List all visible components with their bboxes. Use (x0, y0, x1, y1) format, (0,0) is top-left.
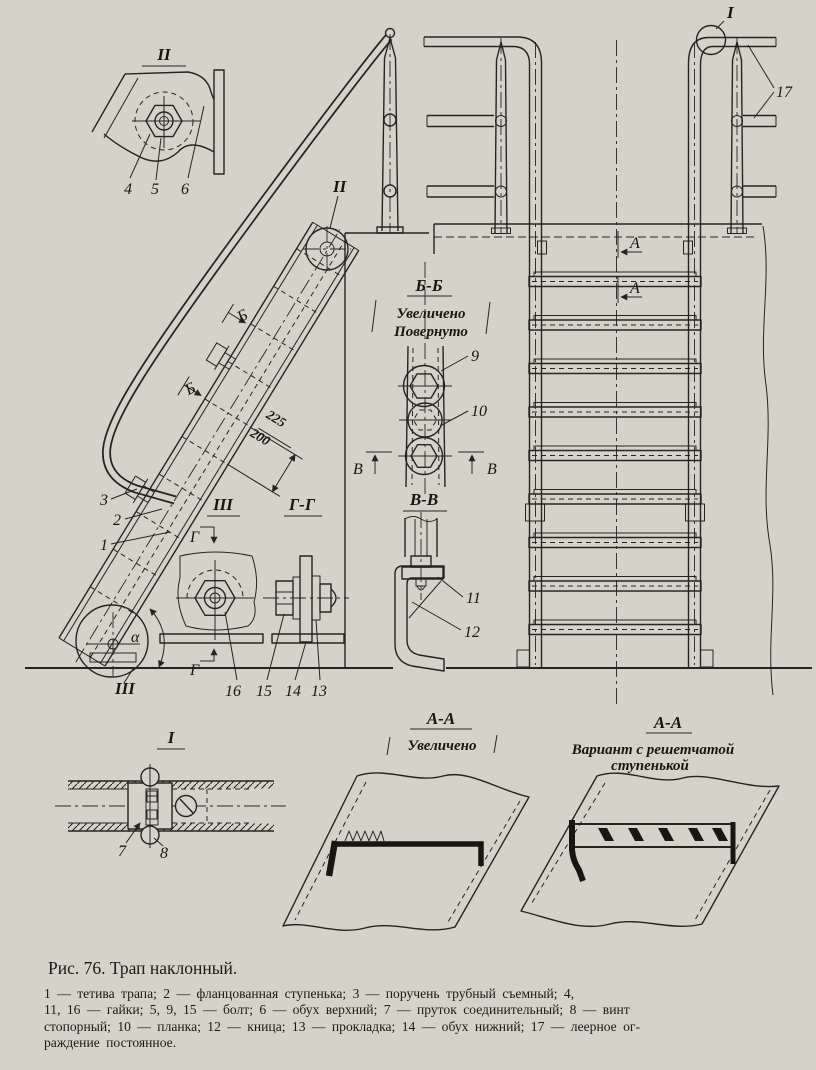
grating-bar (628, 828, 644, 841)
leader-13 (316, 620, 320, 680)
callout-III: III (76, 605, 148, 698)
step (529, 403, 701, 418)
section-bb-title: Б-Б (414, 276, 442, 295)
grated-step (570, 820, 734, 881)
hex-nut-lower (176, 560, 254, 640)
section-aa-variant-title: А-А (653, 713, 682, 732)
leader-5 (156, 138, 161, 180)
grating-bar (658, 828, 674, 841)
part-label-4: 4 (124, 181, 132, 198)
ladder-stringer-band: 200 225 (31, 202, 415, 708)
break-line (763, 226, 773, 695)
dim-225: 225 (263, 406, 289, 430)
plate-fragment (178, 552, 257, 630)
leader-14 (295, 642, 306, 680)
side-view: 200 225 Б Б II III 3 2 (25, 29, 429, 709)
leader-17b (754, 92, 774, 118)
part-label-3: 3 (99, 492, 108, 509)
step (529, 272, 701, 287)
planka-section (402, 567, 443, 579)
leader-4 (130, 134, 150, 178)
section-aa-view: А-А Увеличено (283, 709, 529, 930)
step (529, 620, 701, 635)
section-bb-note2: Повернуто (393, 324, 468, 340)
detail-I-view: I 7 (55, 728, 286, 862)
section-vv-view: В-В 11 12 (395, 490, 481, 671)
section-g-cut-marks: Г Г (189, 527, 214, 679)
stringer-left (517, 42, 547, 667)
step (529, 533, 701, 548)
base-plate-hatched (160, 634, 263, 643)
part-label-7: 7 (118, 843, 127, 860)
gg-bolt-assembly (263, 556, 349, 643)
slotted-screw (176, 796, 197, 817)
ladder-steps (529, 272, 701, 635)
step-angle-bar (332, 844, 481, 866)
part-label-10: 10 (471, 403, 487, 420)
knitsa-bracket (395, 566, 444, 671)
section-vv-title: В-В (409, 490, 438, 509)
grating-bar (598, 828, 614, 841)
mark-a-bottom: А (629, 280, 640, 297)
part-label-1: 1 (100, 537, 108, 554)
part-label-13: 13 (311, 683, 327, 700)
part-label-11: 11 (466, 590, 481, 607)
section-aa-note: Увеличено (408, 738, 477, 754)
mark-b-top: Б (234, 306, 252, 326)
mark-g-bottom: Г (189, 662, 200, 679)
detail-I-title: I (167, 728, 176, 747)
mark-g-top: Г (189, 529, 200, 546)
section-aa-title: А-А (426, 709, 455, 728)
front-view: А А I 17 (424, 3, 812, 704)
callout-II: II (303, 177, 351, 272)
section-bb-view: Б-Б Увеличено Повернуто 9 10 (353, 262, 497, 497)
callout-I-label: I (726, 3, 735, 22)
part-label-9: 9 (471, 348, 479, 365)
railing-stanchion-left (492, 38, 511, 234)
mark-v-right: В (487, 461, 497, 478)
caption-title: Рис. 76. Трап наклонный. (48, 958, 786, 979)
step (529, 446, 701, 461)
detail-III-title: III (212, 495, 234, 514)
step (529, 359, 701, 374)
part-label-17: 17 (776, 84, 793, 101)
callout-II-label: II (332, 177, 348, 196)
weld-serration (345, 831, 384, 841)
connector-coupling (128, 764, 172, 848)
part-label-12: 12 (464, 624, 480, 641)
part-label-8: 8 (160, 845, 168, 862)
section-bb-note1: Увеличено (397, 306, 466, 322)
callout-III-label: III (114, 679, 136, 698)
detail-III-gg-view: III Г-Г Г Г (160, 495, 349, 700)
figure-caption: Рис. 76. Трап наклонный. 1 — тетива трап… (44, 958, 786, 1052)
figure-sheet: II 4 5 6 (0, 0, 816, 1070)
hatched-wall (214, 70, 224, 174)
mark-b-bottom: Б (181, 379, 199, 399)
section-gg-title: Г-Г (288, 495, 316, 514)
handrail-outer (106, 37, 389, 500)
handrail-inner (106, 37, 389, 500)
legend-line: 1 — тетива трапа; 2 — фланцованная ступе… (44, 986, 786, 1002)
top-rail-left (424, 37, 542, 64)
part-label-2: 2 (113, 512, 121, 529)
railing-rails (427, 116, 776, 198)
legend-line: 11, 16 — гайки; 5, 9, 15 — болт; 6 — обу… (44, 1002, 786, 1018)
handrail-stanchion-side (377, 29, 403, 234)
part-label-5: 5 (151, 181, 159, 198)
step-plate-variant (521, 773, 779, 926)
alpha-arc (150, 609, 164, 667)
detail-II-title: II (156, 45, 172, 64)
leader-11 (438, 577, 463, 597)
mark-v-left: В (353, 461, 363, 478)
leader-6 (188, 106, 204, 178)
part-label-14: 14 (285, 683, 301, 700)
grating-bar (712, 828, 728, 841)
section-a-cut-marks: А А (618, 231, 642, 303)
part-label-15: 15 (256, 683, 272, 700)
step-angle-leg (329, 841, 335, 876)
section-aa-variant-note1: Вариант с решетчатой (571, 742, 734, 758)
leader-15 (267, 614, 284, 680)
grating-bar (688, 828, 704, 841)
alpha-label: α (131, 629, 140, 646)
stringer-foot (517, 650, 530, 667)
leader-9 (441, 356, 468, 371)
detail-II-view: II 4 5 6 (92, 45, 224, 198)
leader-17a (748, 45, 774, 88)
step (529, 316, 701, 331)
section-aa-variant-view: А-А Вариант с решетчатой ступенькой (521, 713, 779, 926)
stringer-right (684, 42, 714, 667)
leader-16 (225, 612, 237, 680)
legend-line: раждение постоянное. (44, 1035, 786, 1051)
legend-line: стопорный; 10 — планка; 12 — кница; 13 —… (44, 1019, 786, 1035)
step-plate (283, 773, 529, 930)
railing-stanchion-right (728, 38, 747, 234)
planka-bar (406, 262, 445, 497)
step-pitch-dimension: 200 225 (227, 403, 317, 497)
section-aa-variant-note2: ступенькой (611, 758, 689, 774)
hex-nut-upper (132, 96, 200, 148)
part-label-16: 16 (225, 683, 241, 700)
mark-a-top: А (629, 235, 640, 252)
leader-12 (412, 602, 461, 630)
step (529, 577, 701, 592)
figure-drawing: II 4 5 6 (0, 0, 816, 955)
step (529, 490, 701, 505)
part-label-6: 6 (181, 181, 189, 198)
stringer-foot (701, 650, 714, 667)
